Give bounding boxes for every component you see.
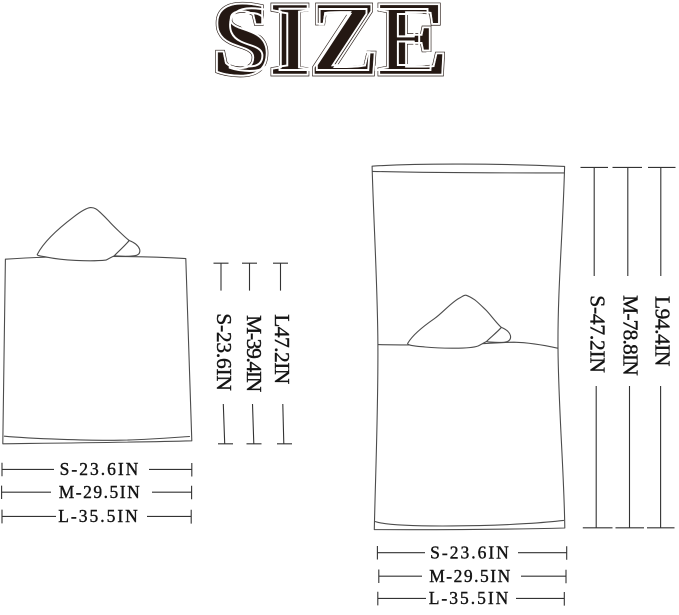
svg-text:L94.4IN: L94.4IN xyxy=(651,296,675,367)
svg-text:L-35.5IN: L-35.5IN xyxy=(429,588,511,608)
svg-text:L-35.5IN: L-35.5IN xyxy=(58,506,140,526)
svg-text:S-23.6IN: S-23.6IN xyxy=(212,313,236,391)
svg-text:S-23.6IN: S-23.6IN xyxy=(60,459,141,479)
svg-text:M-39.4IN: M-39.4IN xyxy=(242,315,266,393)
svg-text:M-29.5IN: M-29.5IN xyxy=(59,482,141,502)
svg-text:S-23.6IN: S-23.6IN xyxy=(430,543,511,563)
svg-text:M-78.8IN: M-78.8IN xyxy=(619,295,643,376)
svg-text:S-47.2IN: S-47.2IN xyxy=(586,295,610,373)
svg-text:L47.2IN: L47.2IN xyxy=(270,314,294,385)
svg-text:SIZE: SIZE xyxy=(225,0,436,91)
svg-text:M-29.5IN: M-29.5IN xyxy=(429,566,511,586)
